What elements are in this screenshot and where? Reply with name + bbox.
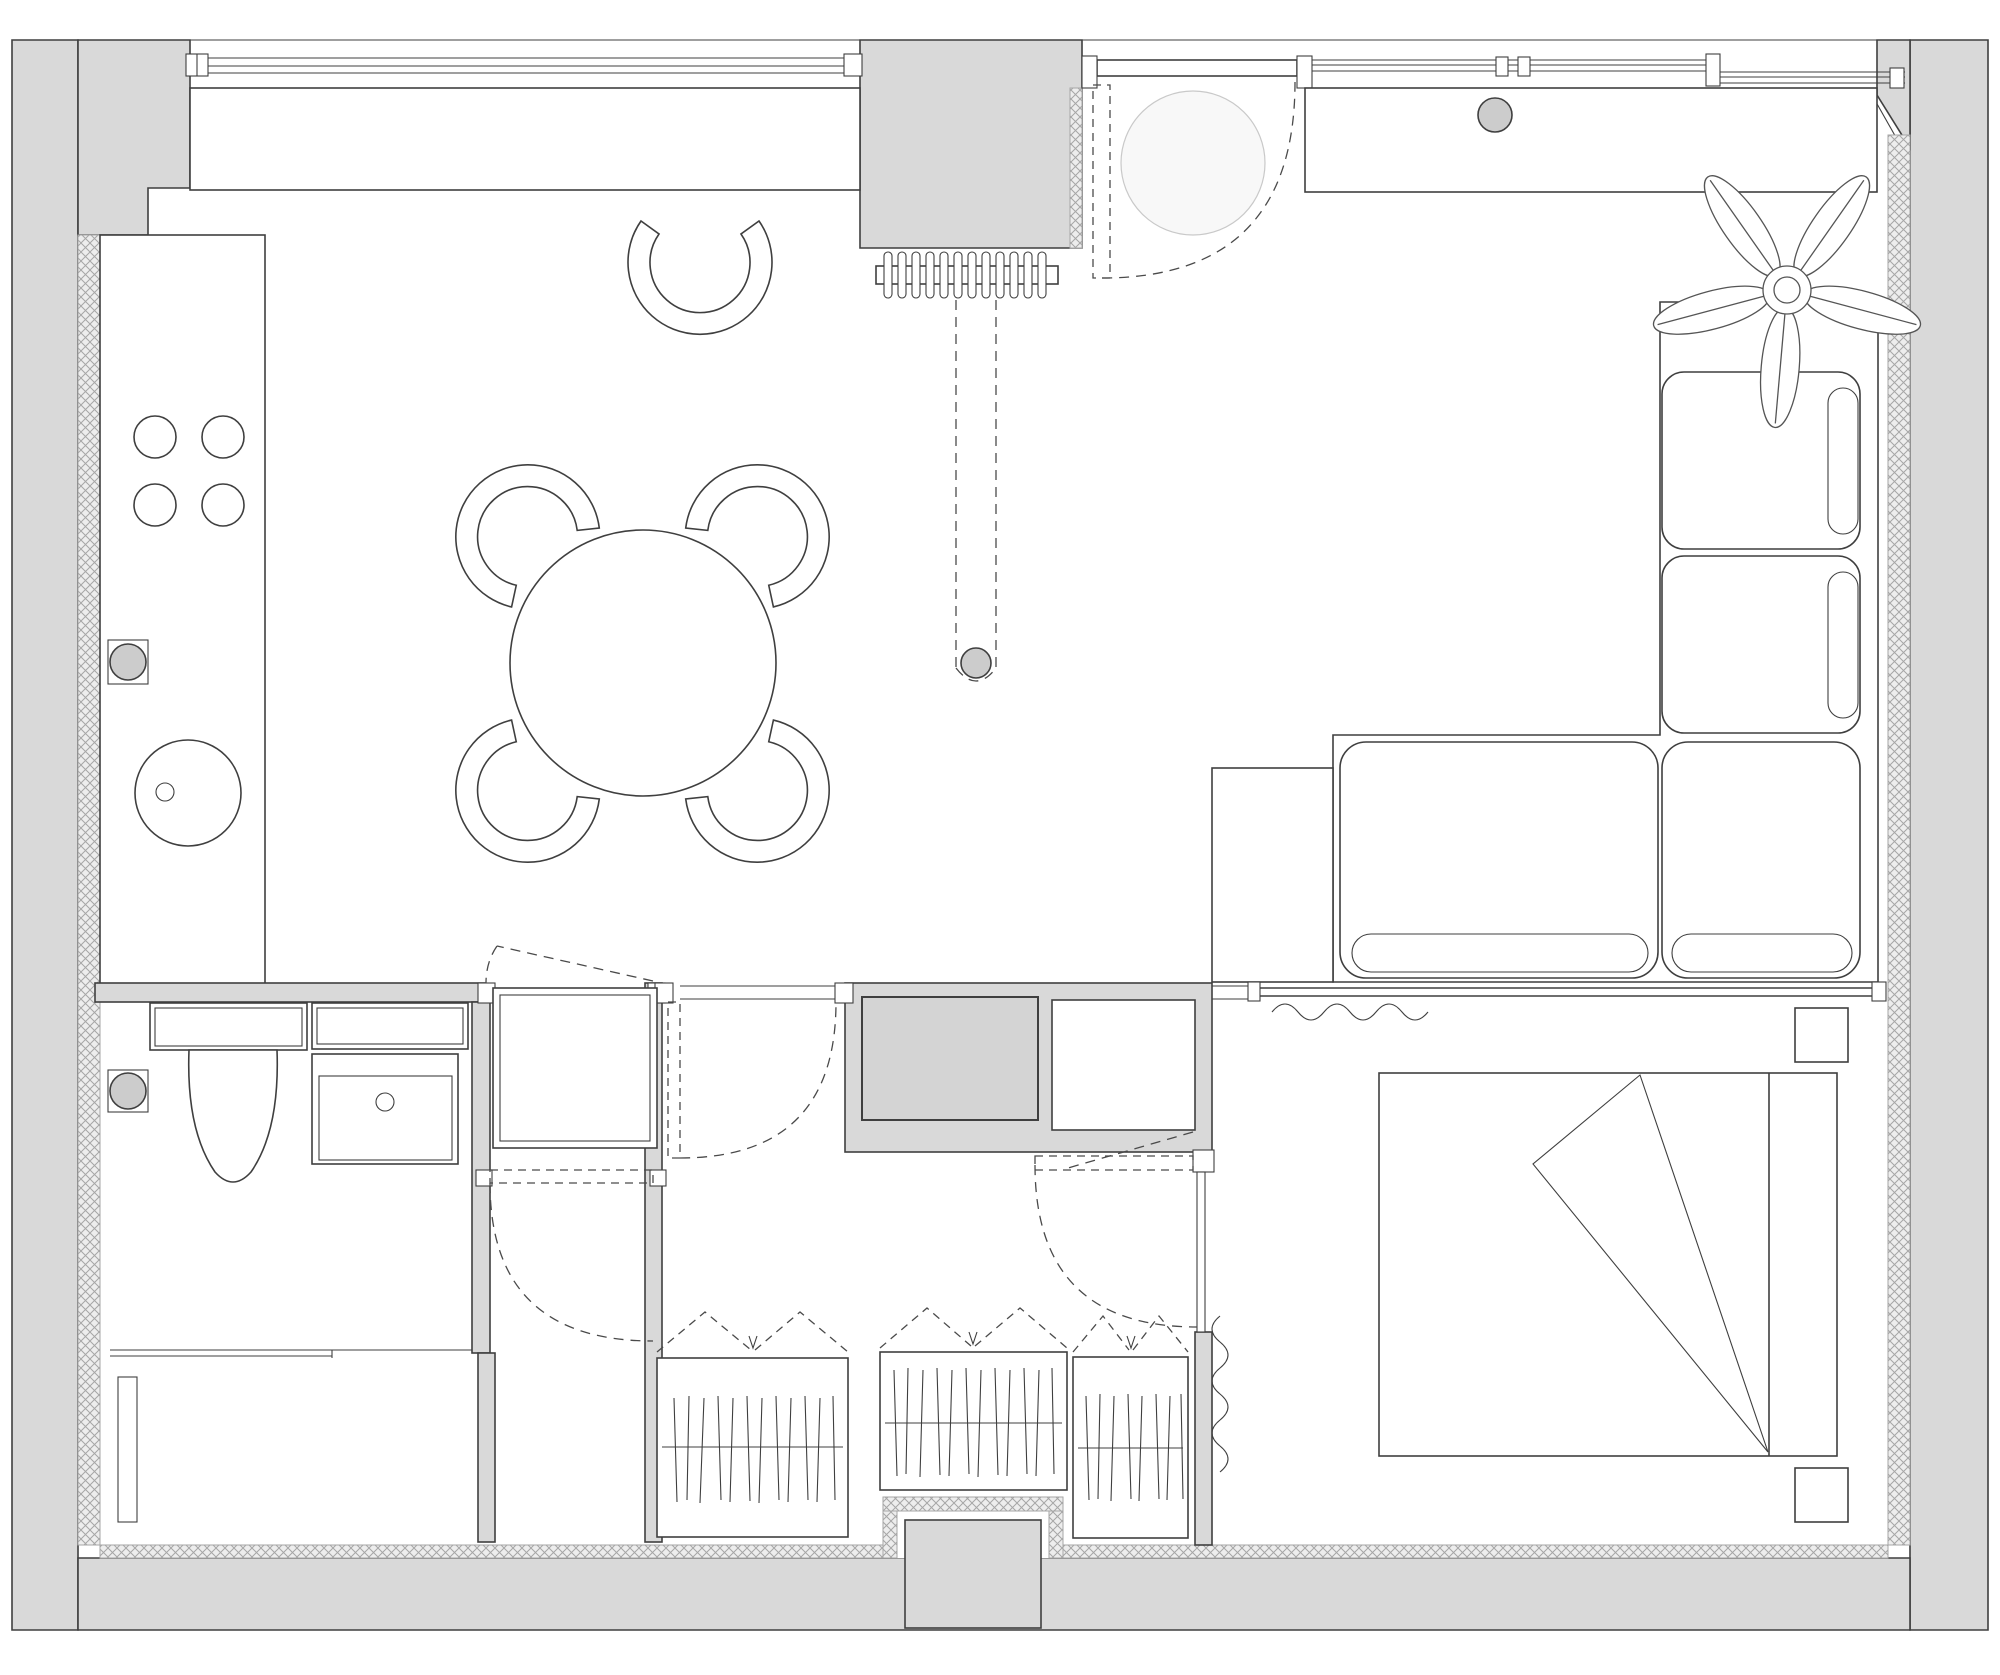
tall-kitchen-counter xyxy=(100,235,265,985)
folding-door-symbols xyxy=(657,1308,1188,1352)
pendant-lamp xyxy=(961,648,991,678)
wall-entry-block xyxy=(860,40,1082,248)
wall-shelf-strip xyxy=(118,1377,137,1522)
sofa-bolster xyxy=(1828,572,1858,718)
wall-corridor-left xyxy=(478,1353,495,1542)
utility-shelf xyxy=(1052,1000,1195,1130)
window-kitchen xyxy=(186,54,862,88)
radiator xyxy=(876,252,1058,298)
partition-curtain xyxy=(1272,1004,1428,1020)
wall-left xyxy=(12,40,78,1630)
utility-closet xyxy=(862,997,1195,1130)
door-jamb xyxy=(1193,1150,1214,1172)
door-leaf xyxy=(1035,1156,1193,1170)
door-swing xyxy=(680,1002,836,1158)
window-living xyxy=(1310,57,1718,76)
wall-bedroom-left xyxy=(1195,1332,1212,1545)
bathroom xyxy=(108,1003,472,1358)
nightstand-bottom xyxy=(1795,1468,1848,1522)
wall-drain-fixture xyxy=(108,1070,148,1112)
utility-washer xyxy=(862,997,1038,1120)
desk-chair xyxy=(628,221,772,334)
partition-jamb xyxy=(1248,982,1260,1001)
insulation-right xyxy=(1888,135,1910,1545)
dining-set xyxy=(426,221,859,892)
door-hall xyxy=(655,983,853,1158)
door-jamb xyxy=(835,983,853,1003)
door-leaf-closed xyxy=(1197,1172,1205,1332)
round-dining-table xyxy=(510,530,776,796)
entry-door-leaf-open xyxy=(1093,85,1110,278)
floor-plan-canvas xyxy=(0,0,2000,1675)
window-corner xyxy=(1706,54,1905,88)
wall-tap xyxy=(108,640,148,684)
entry-door-jamb xyxy=(1082,56,1097,88)
door-corridor xyxy=(476,1170,666,1341)
partition-jamb xyxy=(1872,982,1886,1001)
door-swing xyxy=(490,1183,653,1341)
wall-living-bath xyxy=(95,983,485,1002)
wardrobe-section-1 xyxy=(657,1358,848,1537)
entry-closet xyxy=(1305,88,1877,192)
wall-shelf xyxy=(312,1003,468,1049)
toilet xyxy=(150,1003,307,1182)
insulation-entry-block xyxy=(1070,88,1082,248)
bedroom xyxy=(1379,1008,1848,1522)
wardrobe-section-2 xyxy=(880,1352,1067,1490)
sofa-side-table xyxy=(1212,768,1333,982)
ceiling-light xyxy=(1121,91,1265,235)
pendant-lamp-track xyxy=(956,300,996,681)
door-swing xyxy=(486,946,497,983)
entry-door-leaf-closed xyxy=(1097,60,1297,76)
washbasin-cabinet xyxy=(312,1054,458,1164)
entry-door-jamb xyxy=(1297,56,1312,88)
wall-corner-step-topleft xyxy=(78,40,190,235)
door-leaf xyxy=(490,1170,653,1183)
door-leaf xyxy=(497,946,653,981)
window-mullion xyxy=(1518,57,1530,76)
sofa-bolster xyxy=(1672,934,1852,972)
niche-unit xyxy=(905,1520,1041,1628)
floor-plan xyxy=(0,0,2000,1675)
bedroom-curtain xyxy=(1212,1316,1228,1472)
sofa-bolster xyxy=(1828,388,1858,534)
shower-cabin xyxy=(493,988,657,1148)
window-jamb xyxy=(844,54,862,76)
window-counter-desk xyxy=(190,88,860,190)
entry-closet-knob xyxy=(1478,98,1512,132)
door-swing xyxy=(1035,1165,1197,1327)
door-bedroom xyxy=(1035,1132,1214,1332)
window-jamb xyxy=(1890,68,1904,88)
sofa-bolster xyxy=(1352,934,1648,972)
wardrobe-section-3 xyxy=(1073,1357,1188,1538)
wall-right xyxy=(1910,40,1988,1630)
insulation-left xyxy=(78,235,100,1545)
window-mullion xyxy=(1496,57,1508,76)
exterior-niche xyxy=(883,1497,1063,1628)
window-jamb xyxy=(1706,54,1720,86)
door-leaf xyxy=(668,1002,680,1158)
wall-corner-topright xyxy=(1877,40,1910,148)
double-bed xyxy=(1379,1073,1837,1456)
nightstand-top xyxy=(1795,1008,1848,1062)
round-sink xyxy=(135,740,241,846)
glazed-partition xyxy=(1212,982,1886,1001)
storage-room xyxy=(118,1377,137,1522)
